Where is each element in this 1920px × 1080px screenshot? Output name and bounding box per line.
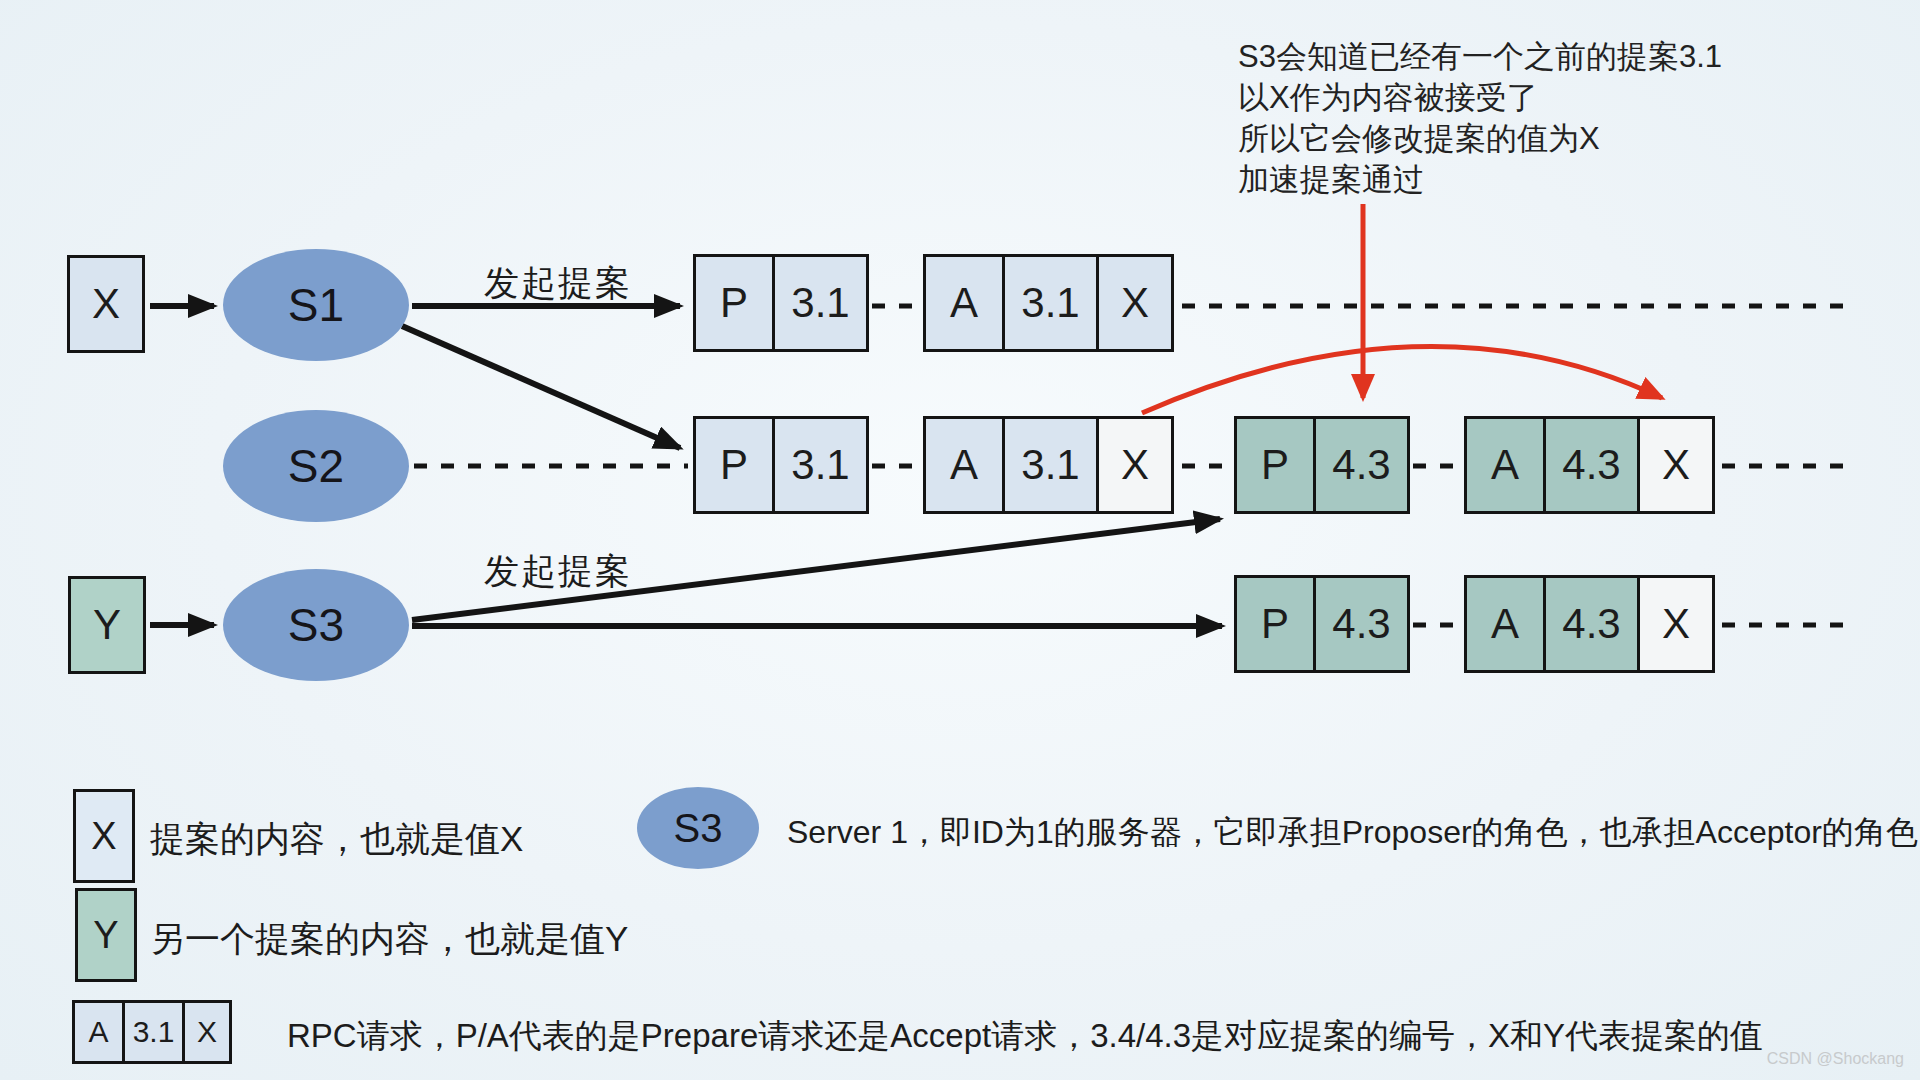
rpc-number-cell: 4.3 bbox=[1543, 578, 1637, 670]
rpc-prepare2-row2: P 4.3 bbox=[1234, 416, 1410, 514]
legend-y-box: Y bbox=[75, 888, 137, 982]
rpc-type-cell: A bbox=[1467, 578, 1543, 670]
rpc-accept-row1: A 3.1 X bbox=[923, 254, 1174, 352]
legend-server-text: Server 1，即ID为1的服务器，它即承担Proposer的角色，也承担Ac… bbox=[787, 811, 1918, 855]
rpc-type-cell: A bbox=[75, 1003, 122, 1061]
rpc-number-cell: 4.3 bbox=[1313, 419, 1407, 511]
rpc-number-cell: 3.1 bbox=[772, 257, 866, 349]
rpc-type-cell: P bbox=[696, 257, 772, 349]
legend-rpc-box: A 3.1 X bbox=[72, 1000, 232, 1064]
rpc-number-cell: 3.1 bbox=[1002, 419, 1096, 511]
rpc-value-cell: X bbox=[1637, 578, 1712, 670]
rpc-prepare-row1: P 3.1 bbox=[693, 254, 869, 352]
propose-label-row1: 发起提案 bbox=[484, 260, 632, 307]
value-box-x: X bbox=[67, 255, 145, 353]
rpc-prepare-row3: P 4.3 bbox=[1234, 575, 1410, 673]
rpc-number-cell: 4.3 bbox=[1313, 578, 1407, 670]
annotation-line: 加速提案通过 bbox=[1238, 159, 1722, 200]
rpc-value-cell: X bbox=[1637, 419, 1712, 511]
value-box-y: Y bbox=[68, 576, 146, 674]
rpc-number-cell: 3.1 bbox=[1002, 257, 1096, 349]
server-ellipse-s2: S2 bbox=[223, 410, 409, 522]
rpc-type-cell: P bbox=[1237, 578, 1313, 670]
annotation-line: 以X作为内容被接受了 bbox=[1238, 77, 1722, 118]
rpc-type-cell: A bbox=[926, 419, 1002, 511]
paxos-diagram: S3会知道已经有一个之前的提案3.1 以X作为内容被接受了 所以它会修改提案的值… bbox=[0, 0, 1920, 1080]
legend-x-box: X bbox=[73, 789, 135, 883]
rpc-value-cell: X bbox=[1096, 257, 1171, 349]
rpc-number-cell: 3.1 bbox=[772, 419, 866, 511]
legend-x-text: 提案的内容，也就是值X bbox=[150, 816, 523, 863]
rpc-number-cell: 3.1 bbox=[122, 1003, 182, 1061]
rpc-value-cell: X bbox=[182, 1003, 229, 1061]
rpc-type-cell: P bbox=[1237, 419, 1313, 511]
rpc-type-cell: P bbox=[696, 419, 772, 511]
legend-server-ellipse: S3 bbox=[637, 787, 759, 869]
rpc-accept-row3: A 4.3 X bbox=[1464, 575, 1715, 673]
rpc-value-cell: X bbox=[1096, 419, 1171, 511]
annotation-line: S3会知道已经有一个之前的提案3.1 bbox=[1238, 36, 1722, 77]
annotation-line: 所以它会修改提案的值为X bbox=[1238, 118, 1722, 159]
legend-y-text: 另一个提案的内容，也就是值Y bbox=[150, 916, 628, 963]
server-ellipse-s3: S3 bbox=[223, 569, 409, 681]
server-ellipse-s1: S1 bbox=[223, 249, 409, 361]
legend-rpc-text: RPC请求，P/A代表的是Prepare请求还是Accept请求，3.4/4.3… bbox=[287, 1014, 1763, 1059]
propose-label-row3: 发起提案 bbox=[484, 548, 632, 595]
annotation-block: S3会知道已经有一个之前的提案3.1 以X作为内容被接受了 所以它会修改提案的值… bbox=[1238, 36, 1722, 200]
red-arc-accepted-x-to-new-accept bbox=[1142, 347, 1662, 413]
rpc-type-cell: A bbox=[926, 257, 1002, 349]
rpc-accept1-row2: A 3.1 X bbox=[923, 416, 1174, 514]
watermark: CSDN @Shockang bbox=[1767, 1050, 1904, 1068]
rpc-prepare1-row2: P 3.1 bbox=[693, 416, 869, 514]
rpc-type-cell: A bbox=[1467, 419, 1543, 511]
arrow-s1-to-prepare-row2 bbox=[402, 326, 680, 448]
rpc-accept2-row2: A 4.3 X bbox=[1464, 416, 1715, 514]
rpc-number-cell: 4.3 bbox=[1543, 419, 1637, 511]
